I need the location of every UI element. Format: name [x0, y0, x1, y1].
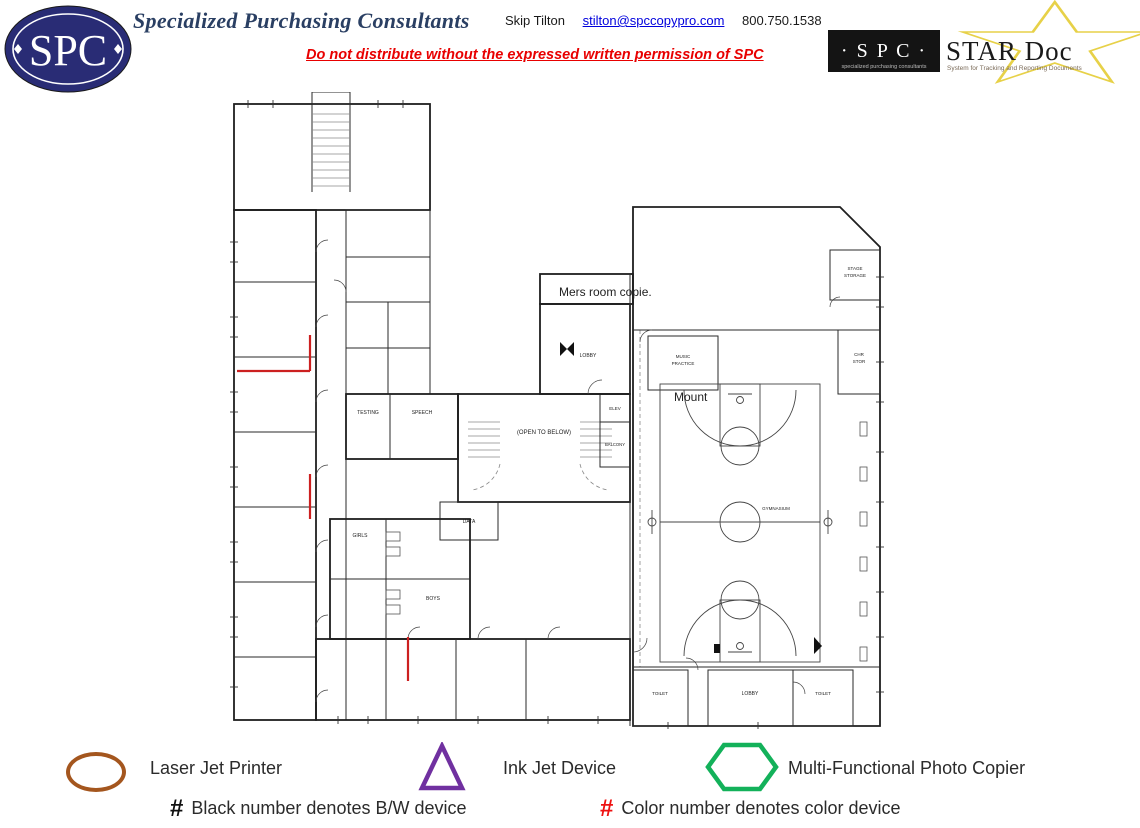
room-label-music-practice: MUSIC — [676, 354, 691, 359]
pilasters — [860, 422, 867, 661]
stardoc-caption: System for Tracking and Reporting Docume… — [947, 65, 1083, 72]
svg-text:PRACTICE: PRACTICE — [672, 361, 695, 366]
room-label-gymnasium: GYMNASIUM — [762, 506, 790, 511]
room-label-toilet-right: TOILET — [815, 691, 831, 696]
stardoc-spc-caption: specialized purchasing consultants — [842, 64, 927, 70]
svg-text:STORAGE: STORAGE — [844, 273, 866, 278]
annotation-mount-note: Mount — [674, 390, 708, 404]
legend-photo-copier-label: Multi-Functional Photo Copier — [788, 758, 1025, 779]
page-title: Specialized Purchasing Consultants — [133, 8, 470, 34]
room-label-lobby-upper: LOBBY — [580, 353, 597, 359]
distribution-warning: Do not distribute without the expressed … — [306, 47, 764, 63]
room-label-chair-storage: CHR — [854, 352, 864, 357]
red-wall-marks — [237, 335, 408, 681]
door-marker — [567, 342, 574, 356]
window-ticks — [230, 100, 884, 729]
contact-email-link[interactable]: stilton@spccopypro.com — [583, 13, 725, 28]
red-hash-icon: # — [600, 795, 613, 822]
spc-logo-text: SPC — [29, 26, 107, 75]
stardoc-spc-text: · S P C · — [841, 40, 927, 62]
stardoc-logo: · S P C · specialized purchasing consult… — [826, 0, 1140, 86]
spc-logo: SPC — [2, 2, 134, 94]
floor-plan: TESTING SPEECH (OPEN TO BELOW) ELEV BALC… — [228, 92, 885, 729]
room-label-toilet-left: TOILET — [652, 691, 668, 696]
page: SPC Specialized Purchasing Consultants S… — [0, 0, 1140, 828]
photo-copier-hexagon-icon — [705, 741, 779, 793]
legend-note-color: #Color number denotes color device — [600, 795, 901, 823]
room-label-speech: SPEECH — [412, 410, 433, 416]
annotation-copier-note: Mers room copie. — [559, 285, 652, 299]
legend-note-bw: #Black number denotes B/W device — [170, 795, 467, 823]
contact-line: Skip Tilton stilton@spccopypro.com 800.7… — [505, 13, 822, 28]
room-label-boys: BOYS — [426, 596, 441, 602]
basketball-court — [648, 384, 832, 662]
room-label-testing: TESTING — [357, 410, 379, 416]
stair-treads — [312, 114, 350, 186]
legend-laser-jet-label: Laser Jet Printer — [150, 758, 282, 779]
legend-ink-jet-label: Ink Jet Device — [503, 758, 616, 779]
room-label-girls: GIRLS — [352, 533, 368, 539]
room-label-elev: ELEV — [609, 406, 621, 411]
door-marker — [560, 342, 567, 356]
laser-jet-ellipse-icon — [66, 752, 126, 792]
room-label-lobby-lower: LOBBY — [742, 691, 759, 697]
contact-name: Skip Tilton — [505, 13, 565, 28]
stardoc-title: STAR Doc — [946, 36, 1073, 66]
room-label-stage-storage: STAGE — [848, 266, 863, 271]
contact-phone: 800.750.1538 — [742, 13, 822, 28]
black-hash-icon: # — [170, 795, 183, 822]
room-label-balcony: BALCONY — [605, 442, 625, 447]
room-label-open-to-below: (OPEN TO BELOW) — [517, 430, 571, 436]
ink-jet-triangle-icon — [418, 742, 466, 792]
svg-text:STOR: STOR — [853, 359, 866, 364]
door-swings — [316, 240, 840, 702]
